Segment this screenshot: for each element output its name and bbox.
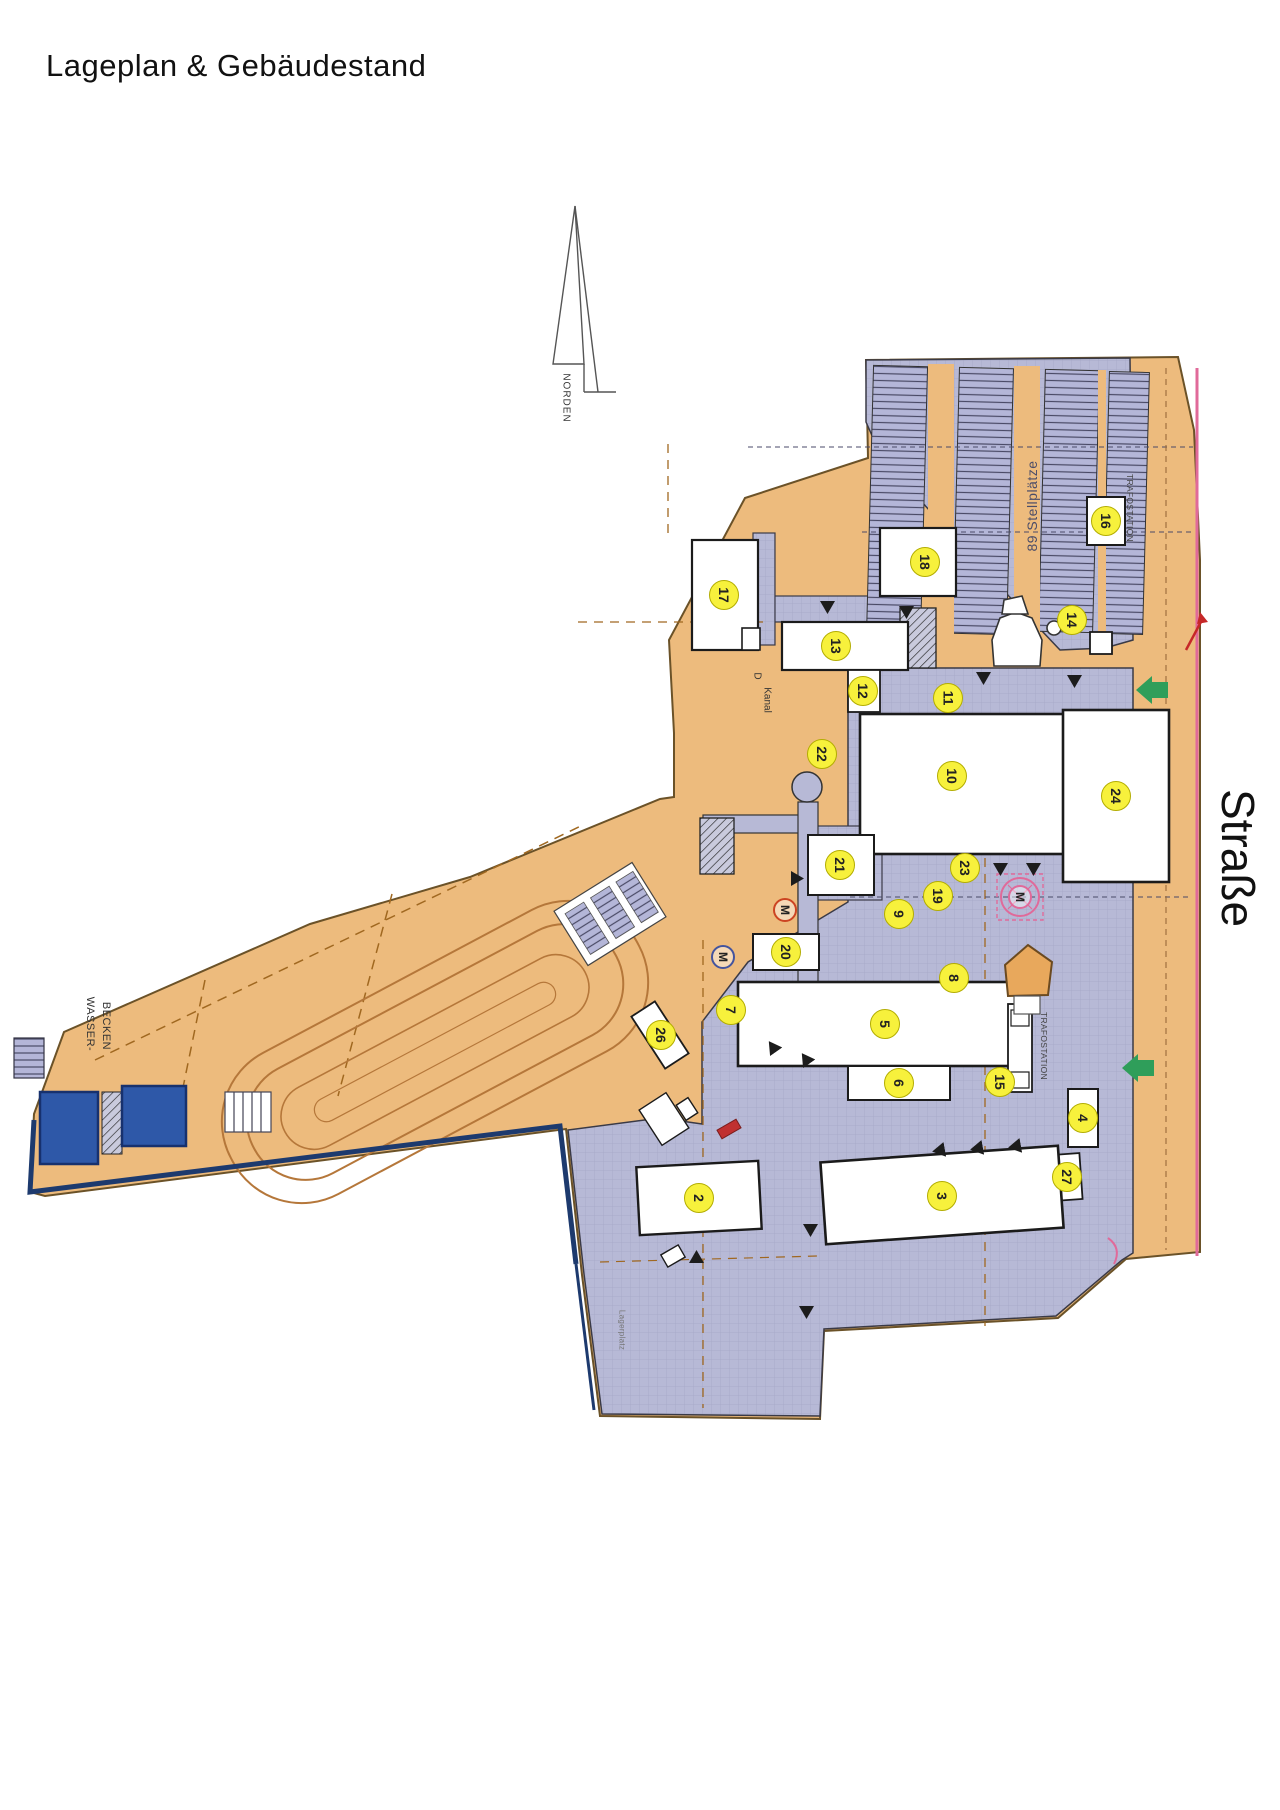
badge-27: 27 — [1052, 1162, 1082, 1192]
badge-19: 19 — [923, 881, 953, 911]
badge-4: 4 — [1068, 1103, 1098, 1133]
m-marker-1: M — [773, 898, 797, 922]
badge-number: 10 — [944, 768, 960, 784]
water-basin-2 — [122, 1086, 186, 1146]
badge-14: 14 — [1057, 605, 1087, 635]
badge-15: 15 — [985, 1067, 1015, 1097]
badge-number: 13 — [828, 638, 844, 654]
north-arrow-icon — [553, 206, 616, 392]
trellis-structure — [225, 1092, 271, 1132]
badge-22: 22 — [807, 739, 837, 769]
silo-cylinder — [792, 772, 822, 802]
badge-number: 8 — [946, 974, 962, 982]
badge-6: 6 — [884, 1068, 914, 1098]
badge-number: 17 — [716, 587, 732, 603]
building-17-annex — [742, 628, 760, 650]
badge-5: 5 — [870, 1009, 900, 1039]
badge-number: 4 — [1075, 1114, 1091, 1122]
badge-26: 26 — [646, 1020, 676, 1050]
badge-11: 11 — [933, 683, 963, 713]
m-marker-letter: M — [778, 905, 792, 915]
badge-number: 9 — [891, 910, 907, 918]
badge-number: 22 — [814, 746, 830, 762]
badge-number: 18 — [917, 554, 933, 570]
label-street-name: Straße — [1211, 789, 1265, 927]
badge-number: 19 — [930, 888, 946, 904]
label-kanal-d: D — [752, 672, 763, 679]
label-trafo-south: TRAFOSTATION — [1039, 1012, 1049, 1080]
badge-number: 2 — [691, 1194, 707, 1202]
badge-number: 27 — [1059, 1169, 1075, 1185]
label-parking-count: 89 Stellplätze — [1024, 460, 1040, 551]
label-norden: NORDEN — [561, 373, 572, 422]
badge-number: 14 — [1064, 612, 1080, 628]
hatched-block-mid — [700, 818, 734, 874]
m-marker-3: M — [1008, 885, 1032, 909]
badge-number: 23 — [957, 860, 973, 876]
label-kanal: Kanal — [762, 687, 773, 713]
badge-24: 24 — [1101, 781, 1131, 811]
m-marker-letter: M — [716, 952, 730, 962]
site-plan-drawing — [0, 0, 1280, 1810]
badge-10: 10 — [937, 761, 967, 791]
m-marker-letter: M — [1013, 892, 1027, 902]
badge-number: 26 — [653, 1027, 669, 1043]
badge-number: 5 — [877, 1020, 893, 1028]
badge-12: 12 — [848, 676, 878, 706]
hatched-patch-pools — [102, 1092, 122, 1154]
badge-18: 18 — [910, 547, 940, 577]
badge-20: 20 — [771, 937, 801, 967]
badge-number: 3 — [934, 1192, 950, 1200]
badge-number: 7 — [723, 1006, 739, 1014]
label-lagerplatz: Lagerplatz — [618, 1310, 627, 1350]
label-wasser-2: BECKEN — [100, 1002, 112, 1050]
badge-number: 6 — [891, 1079, 907, 1087]
striped-shed — [14, 1038, 44, 1078]
badge-number: 24 — [1108, 788, 1124, 804]
m-marker-2: M — [711, 945, 735, 969]
square-14 — [1090, 632, 1112, 654]
badge-23: 23 — [950, 853, 980, 883]
site-plan-page: Lageplan & Gebäudestand — [0, 0, 1280, 1810]
badge-3: 3 — [927, 1181, 957, 1211]
badge-21: 21 — [825, 850, 855, 880]
label-wasser-1: WASSER- — [84, 997, 96, 1051]
building-10 — [860, 714, 1080, 854]
badge-number: 20 — [778, 944, 794, 960]
badge-number: 15 — [992, 1074, 1008, 1090]
water-basin-1 — [40, 1092, 98, 1164]
badge-9: 9 — [884, 899, 914, 929]
badge-8: 8 — [939, 963, 969, 993]
badge-number: 12 — [855, 683, 871, 699]
badge-number: 16 — [1098, 513, 1114, 529]
badge-13: 13 — [821, 631, 851, 661]
badge-17: 17 — [709, 580, 739, 610]
badge-number: 11 — [940, 691, 956, 706]
badge-7: 7 — [716, 995, 746, 1025]
badge-16: 16 — [1091, 506, 1121, 536]
badge-2: 2 — [684, 1183, 714, 1213]
label-trafo-north: TRAFOSTATION — [1125, 474, 1135, 542]
badge-number: 21 — [832, 857, 848, 873]
